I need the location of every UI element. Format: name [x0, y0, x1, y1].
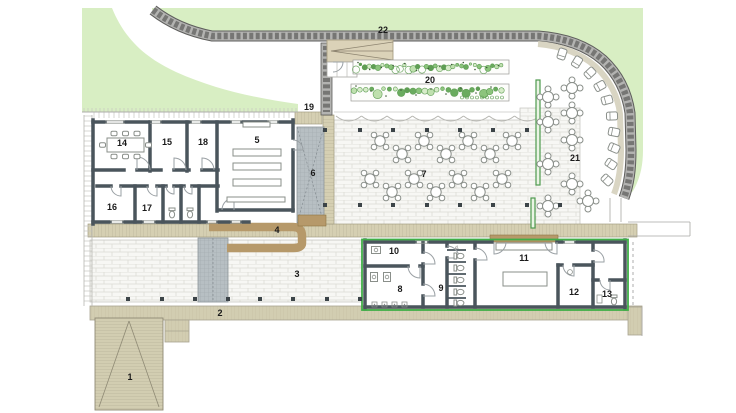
pergola-post	[193, 297, 197, 301]
room-label-9: 9	[438, 283, 443, 293]
room-label-16: 16	[107, 202, 117, 212]
toilet-icon	[454, 300, 464, 306]
toilet-icon	[454, 253, 464, 259]
toilet-icon	[454, 289, 464, 295]
pergola-post	[458, 128, 462, 132]
ramp-19	[295, 112, 322, 124]
floor-plan-page: 12345678910111213141516171819202122d.	[0, 0, 736, 413]
pergola-post	[391, 203, 395, 207]
door-swing	[408, 266, 420, 278]
pergola-post	[525, 128, 529, 132]
pergola-post	[425, 203, 429, 207]
pergola-post	[558, 203, 562, 207]
pergola-post	[160, 297, 164, 301]
shelf	[243, 122, 270, 127]
room-label-20: 20	[425, 75, 435, 85]
room-label-21: 21	[570, 153, 580, 163]
washbasin-icon	[371, 273, 378, 282]
pergola-post	[358, 297, 362, 301]
room-label-14: 14	[117, 138, 127, 148]
shelf	[227, 197, 285, 202]
door-note-label: d.	[455, 245, 459, 250]
lounge-chair	[593, 80, 606, 92]
table-room-11	[503, 272, 547, 286]
washbasin-icon	[384, 273, 391, 282]
room-label-5: 5	[254, 135, 259, 145]
lounge-chair	[601, 95, 614, 106]
toilet-icon	[454, 277, 464, 283]
room-label-19: 19	[304, 102, 314, 112]
door-swing	[423, 252, 435, 264]
pergola-post	[458, 203, 462, 207]
pergola-post	[323, 128, 327, 132]
door-swing	[475, 248, 487, 260]
lounge-chair	[608, 127, 620, 137]
lounge-chair	[604, 158, 618, 171]
pergola-post	[226, 297, 230, 301]
floor-plan-canvas: 12345678910111213141516171819202122d.	[0, 0, 736, 413]
room-label-11: 11	[519, 253, 529, 263]
shelf	[233, 163, 281, 170]
table-with-chairs	[561, 77, 583, 99]
building-1	[95, 318, 189, 410]
pergola-post	[325, 297, 329, 301]
pergola-post	[258, 297, 262, 301]
pergola-post	[525, 203, 529, 207]
pergola-post	[491, 203, 495, 207]
room-label-22: 22	[378, 25, 388, 35]
pergola-post	[358, 203, 362, 207]
room-label-6: 6	[310, 168, 315, 178]
washbasin-icon	[372, 247, 381, 254]
room-label-13: 13	[602, 289, 612, 299]
door-swing	[202, 158, 214, 170]
room-label-18: 18	[198, 137, 208, 147]
pergola-post	[358, 128, 362, 132]
room-label-15: 15	[162, 137, 172, 147]
door-swing	[423, 284, 435, 296]
shelf	[233, 149, 281, 156]
room-label-17: 17	[142, 203, 152, 213]
counter-room-11	[490, 235, 558, 242]
shelf	[233, 179, 281, 186]
room-label-2: 2	[217, 308, 222, 318]
pergola-post	[391, 128, 395, 132]
room-label-1: 1	[127, 372, 132, 382]
fixture-icon	[568, 270, 573, 275]
pergola-post	[491, 128, 495, 132]
room-label-3: 3	[294, 269, 299, 279]
door-swing	[593, 250, 604, 262]
pergola-post	[323, 203, 327, 207]
pergola-post	[126, 297, 130, 301]
room-label-12: 12	[569, 287, 579, 297]
toilet-icon	[169, 208, 175, 218]
room-label-8: 8	[397, 284, 402, 294]
path-2-end	[628, 307, 642, 335]
lower-building-outline	[362, 240, 628, 311]
toilet-icon	[454, 265, 464, 271]
room-label-7: 7	[421, 169, 426, 179]
room-label-10: 10	[389, 246, 399, 256]
door-swing	[174, 158, 186, 170]
lounge-chair	[600, 173, 613, 186]
pergola-post	[425, 128, 429, 132]
lounge-chair	[606, 112, 617, 120]
room-label-4: 4	[274, 225, 279, 235]
toilet-icon	[187, 208, 193, 218]
pergola-post	[291, 297, 295, 301]
